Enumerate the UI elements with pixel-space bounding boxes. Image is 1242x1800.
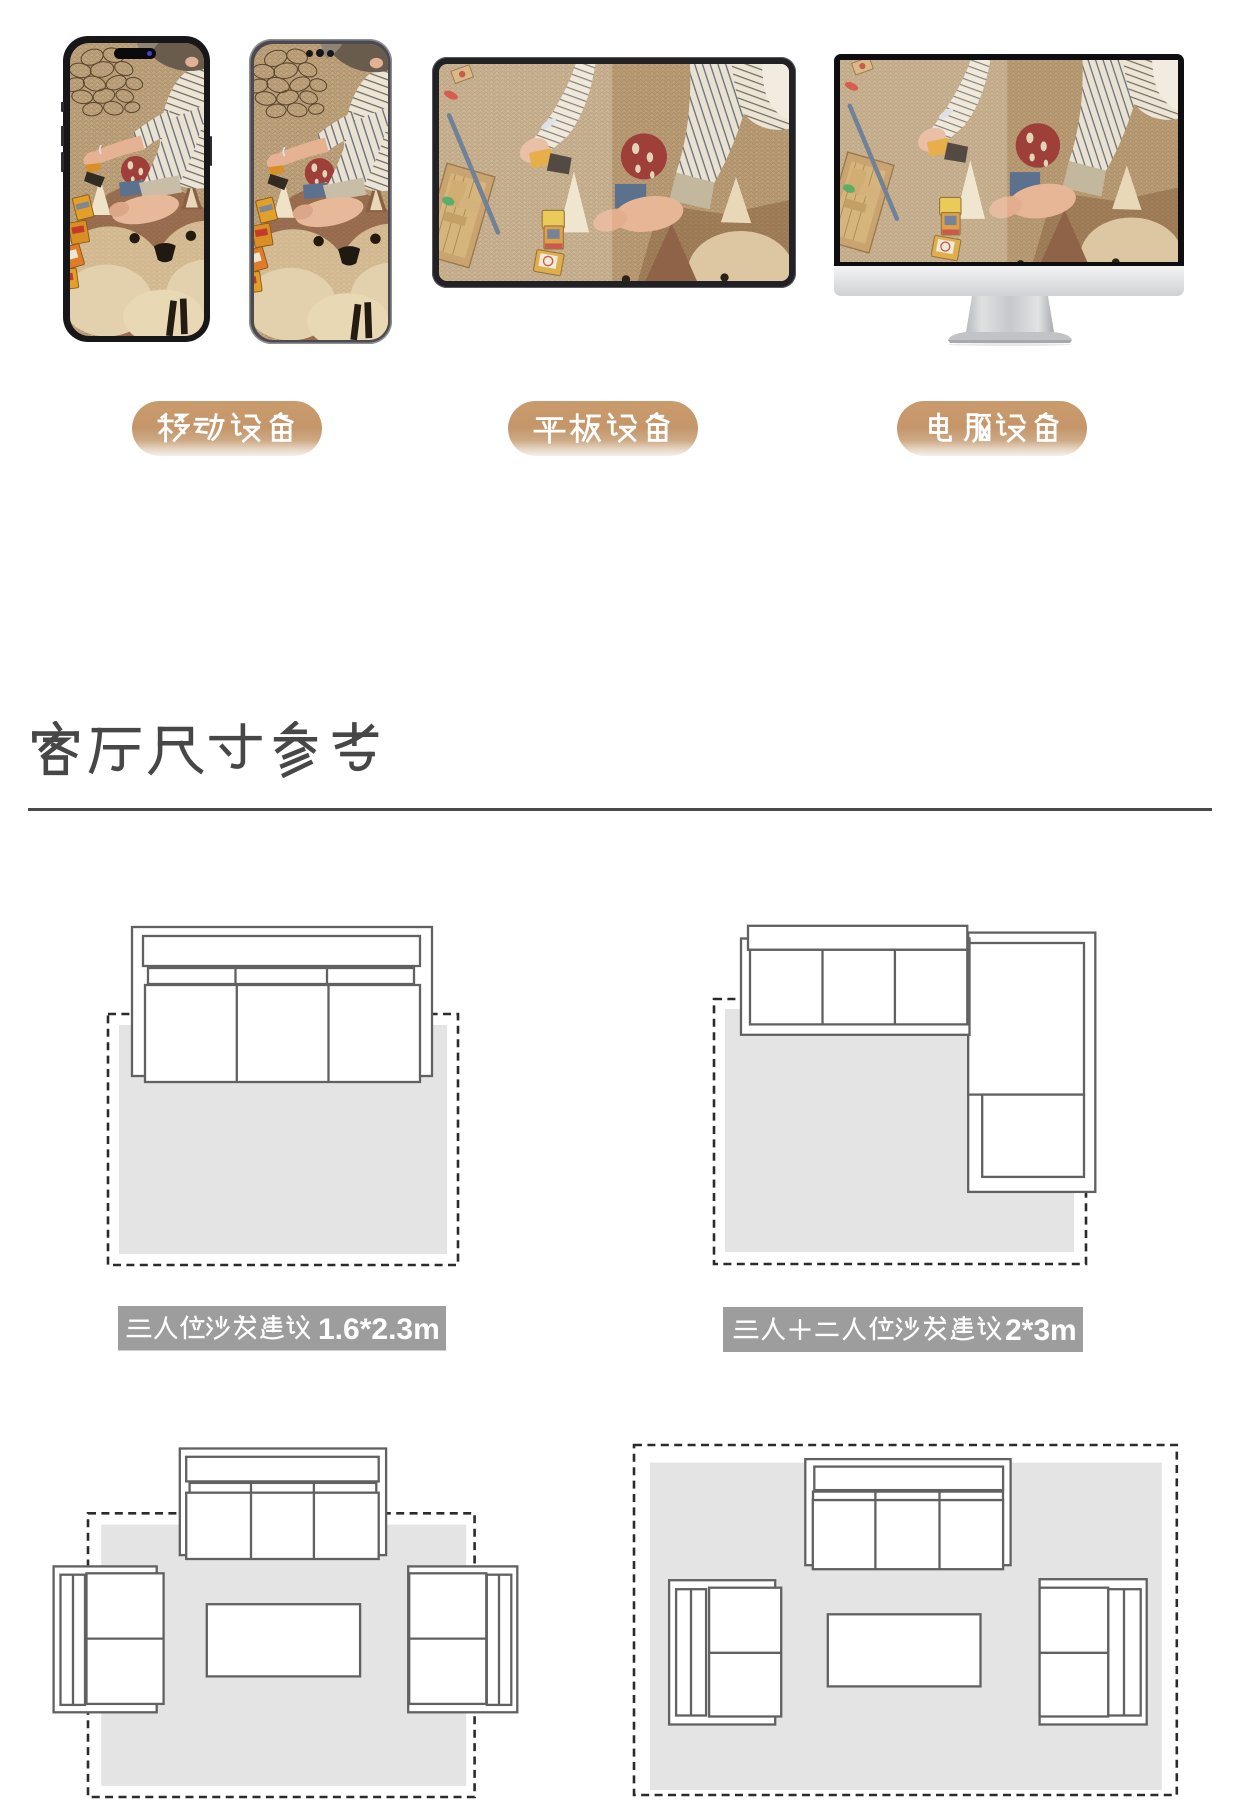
- svg-text:2*3m: 2*3m: [1005, 1314, 1077, 1347]
- svg-text:1.6*2.3m: 1.6*2.3m: [318, 1313, 440, 1346]
